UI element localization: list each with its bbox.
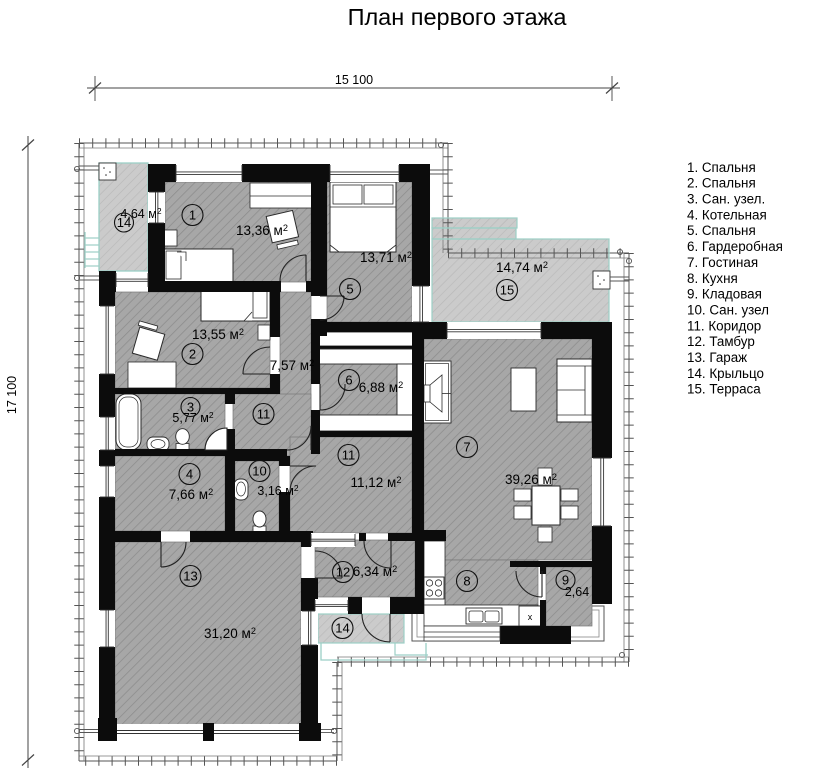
svg-text:13,55 м2: 13,55 м2 xyxy=(192,327,244,342)
svg-text:11. Коридор: 11. Коридор xyxy=(687,318,761,333)
svg-text:5,77 м2: 5,77 м2 xyxy=(172,410,213,425)
svg-text:2: 2 xyxy=(189,347,196,362)
svg-text:15. Терраса: 15. Терраса xyxy=(687,382,761,397)
svg-text:39,26 м2: 39,26 м2 xyxy=(505,472,557,487)
svg-text:15 100: 15 100 xyxy=(335,73,373,87)
svg-text:6: 6 xyxy=(345,373,352,388)
svg-text:5. Спальня: 5. Спальня xyxy=(687,223,756,238)
svg-text:7. Гостиная: 7. Гостиная xyxy=(687,255,758,270)
svg-text:14,74 м2: 14,74 м2 xyxy=(496,260,548,275)
svg-text:8: 8 xyxy=(463,574,470,589)
svg-text:11: 11 xyxy=(257,407,271,422)
svg-text:7,57 м2: 7,57 м2 xyxy=(270,358,314,373)
svg-text:17 100: 17 100 xyxy=(5,376,19,414)
svg-text:6,88 м2: 6,88 м2 xyxy=(359,380,403,395)
svg-text:10: 10 xyxy=(252,464,266,479)
svg-text:5: 5 xyxy=(346,282,353,297)
svg-text:9. Кладовая: 9. Кладовая xyxy=(687,287,762,302)
svg-text:13,71 м2: 13,71 м2 xyxy=(360,250,412,265)
svg-text:12: 12 xyxy=(336,565,350,580)
svg-text:7: 7 xyxy=(463,440,470,455)
svg-text:x: x xyxy=(528,612,533,622)
svg-text:8. Кухня: 8. Кухня xyxy=(687,271,738,286)
svg-text:План первого этажа: План первого этажа xyxy=(348,4,568,30)
svg-text:1: 1 xyxy=(189,208,196,223)
svg-text:2. Спальня: 2. Спальня xyxy=(687,176,756,191)
svg-text:13: 13 xyxy=(183,569,197,584)
svg-text:4. Котельная: 4. Котельная xyxy=(687,207,767,222)
svg-text:12. Тамбур: 12. Тамбур xyxy=(687,334,755,349)
svg-text:4,64 м2: 4,64 м2 xyxy=(120,206,161,221)
svg-text:11,12 м2: 11,12 м2 xyxy=(351,475,402,490)
svg-text:4: 4 xyxy=(186,467,193,482)
svg-text:7,66 м2: 7,66 м2 xyxy=(169,487,213,502)
svg-text:11: 11 xyxy=(342,448,356,463)
svg-text:13. Гараж: 13. Гараж xyxy=(687,350,747,365)
svg-text:2,64: 2,64 xyxy=(565,585,589,599)
svg-text:6,34 м2: 6,34 м2 xyxy=(353,564,397,579)
svg-text:1. Спальня: 1. Спальня xyxy=(687,160,756,175)
svg-text:6. Гардеробная: 6. Гардеробная xyxy=(687,239,783,254)
svg-text:14. Крыльцо: 14. Крыльцо xyxy=(687,366,764,381)
svg-text:15: 15 xyxy=(500,283,514,298)
svg-text:3. Сан. узел.: 3. Сан. узел. xyxy=(687,192,765,207)
svg-text:13,36 м2: 13,36 м2 xyxy=(236,223,288,238)
svg-text:3,16 м2: 3,16 м2 xyxy=(257,483,298,498)
svg-text:31,20 м2: 31,20 м2 xyxy=(204,626,256,641)
svg-text:14: 14 xyxy=(335,621,349,636)
svg-text:10. Сан. узел: 10. Сан. узел xyxy=(687,303,769,318)
